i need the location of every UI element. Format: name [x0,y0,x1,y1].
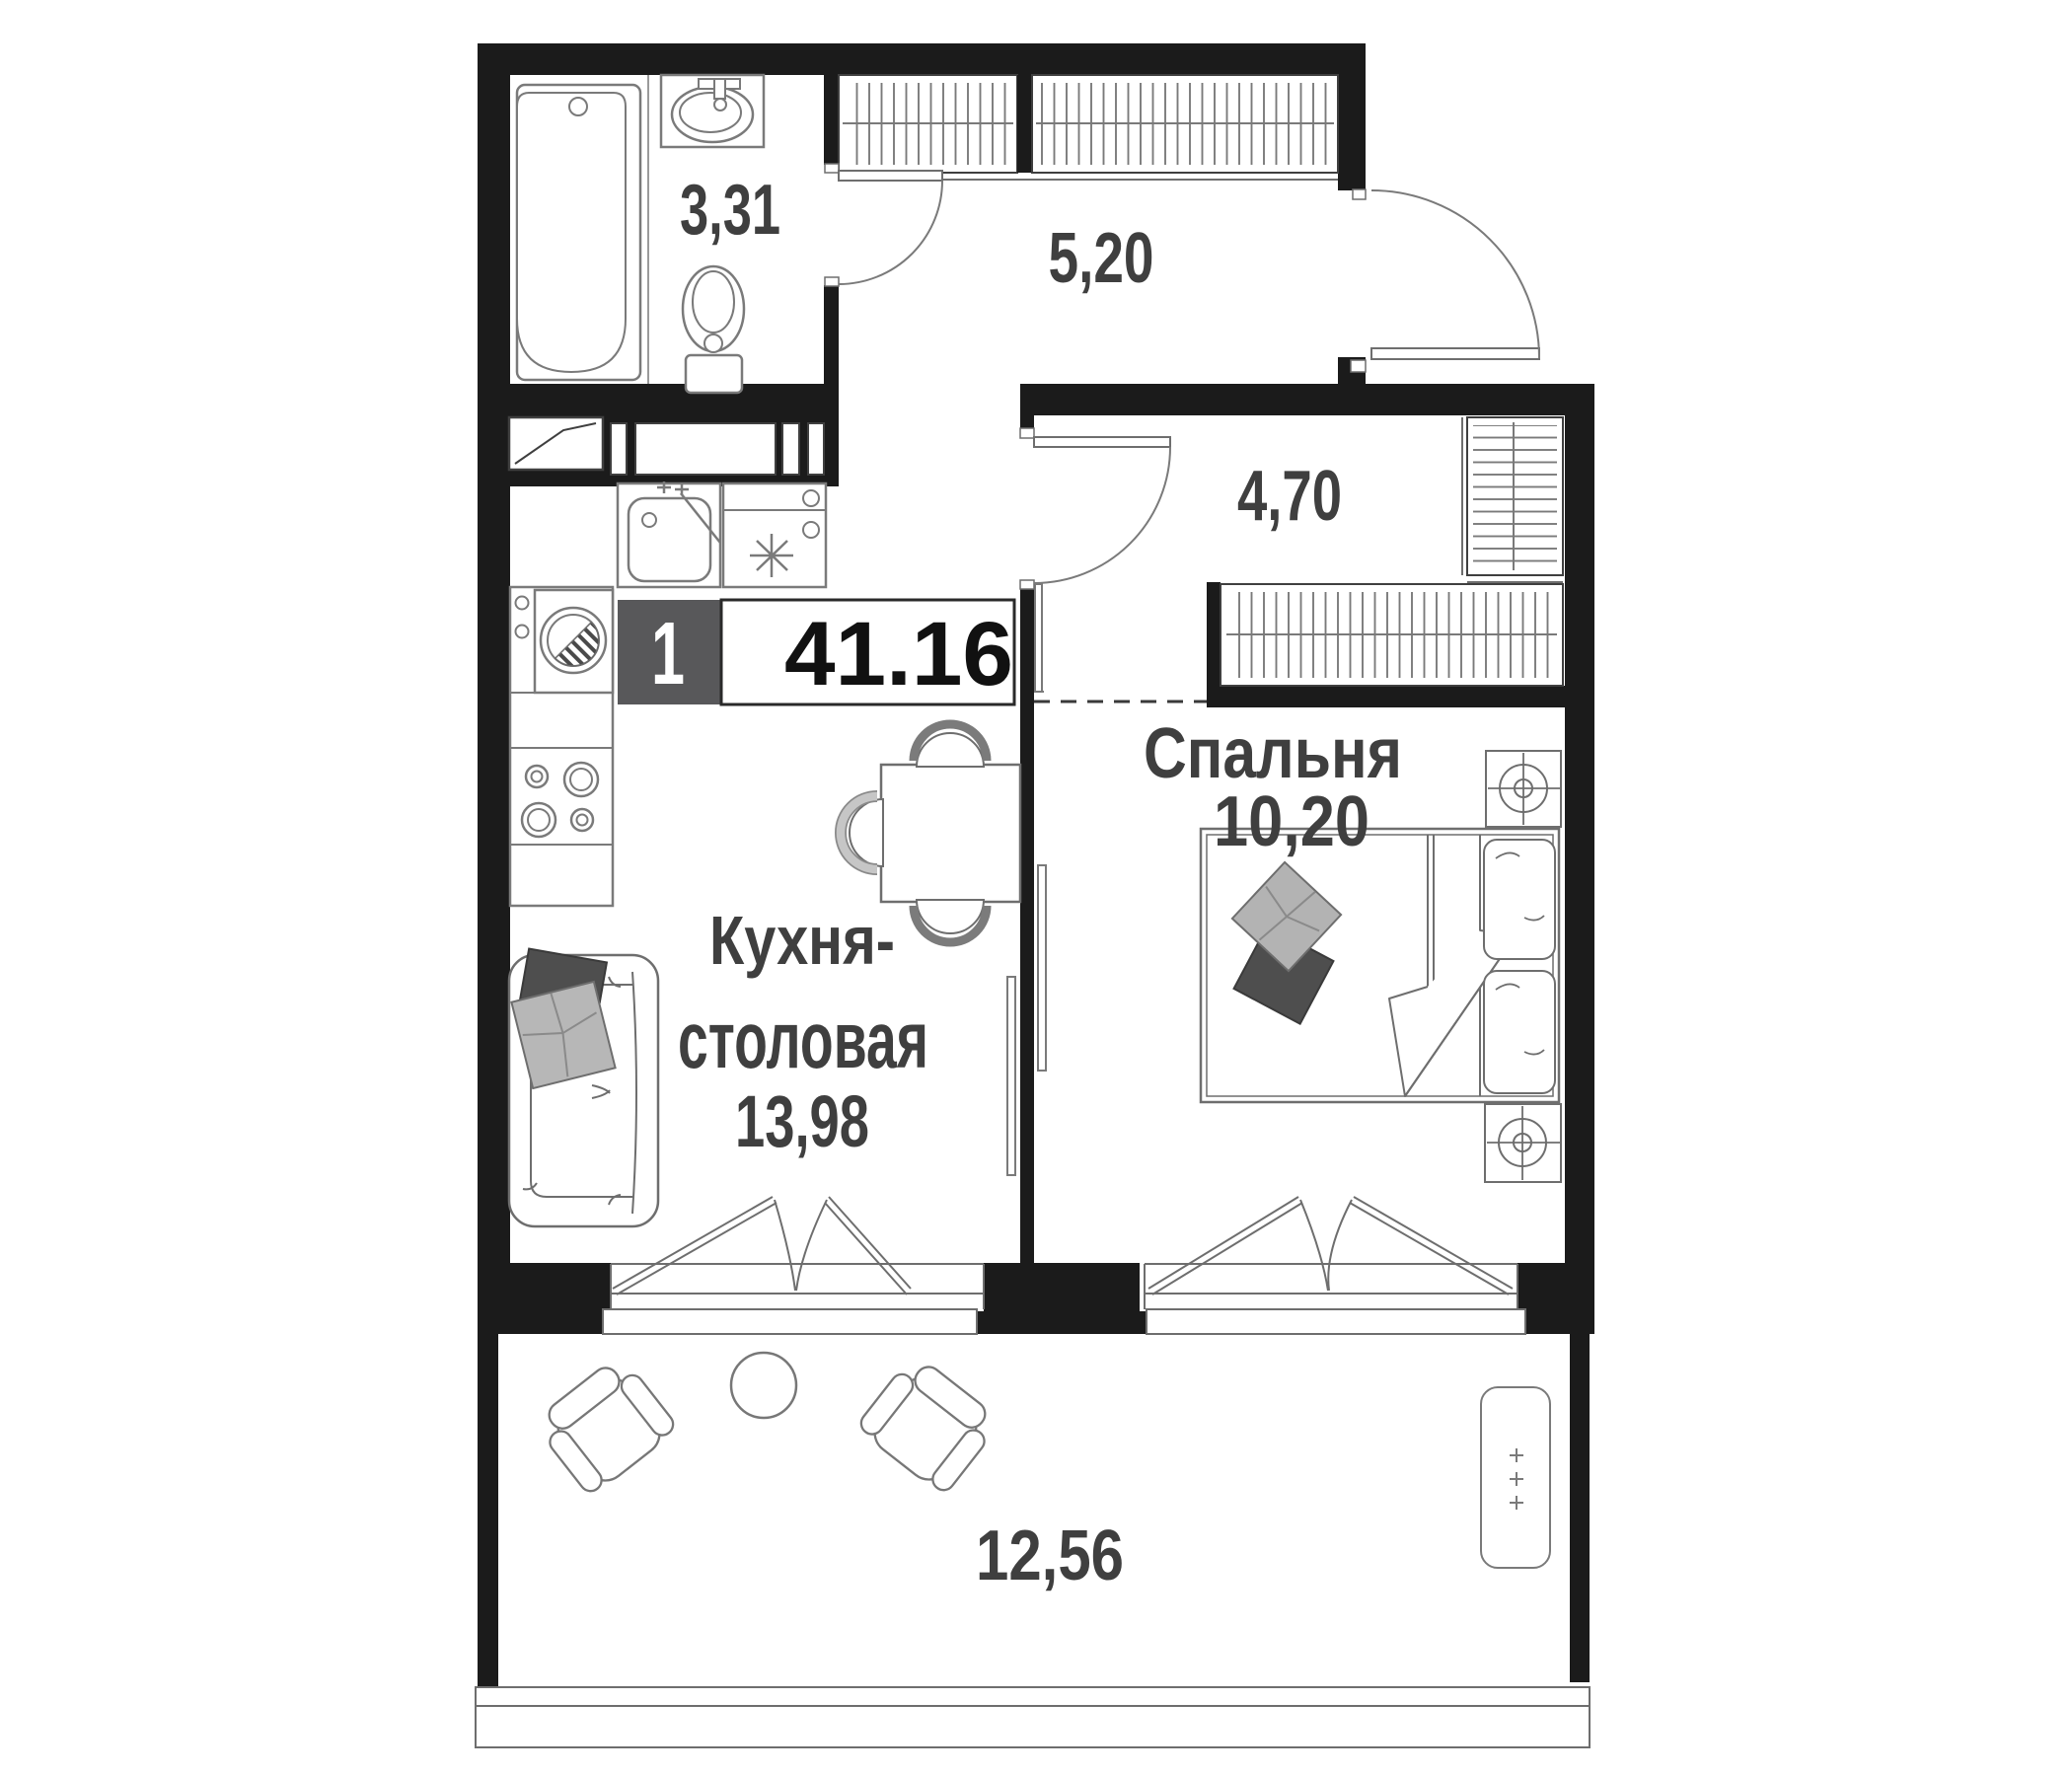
svg-text:41.16: 41.16 [784,604,1013,704]
svg-text:12,56: 12,56 [976,1517,1124,1595]
svg-text:10,20: 10,20 [1214,782,1369,861]
svg-text:5,20: 5,20 [1049,219,1154,298]
svg-text:Кухня-: Кухня- [709,902,895,979]
svg-text:1: 1 [651,605,685,703]
svg-text:4,70: 4,70 [1237,457,1342,536]
svg-text:Спальня: Спальня [1144,714,1402,793]
svg-text:13,98: 13,98 [735,1080,869,1162]
svg-text:столовая: столовая [678,996,928,1085]
svg-text:3,31: 3,31 [680,171,780,250]
